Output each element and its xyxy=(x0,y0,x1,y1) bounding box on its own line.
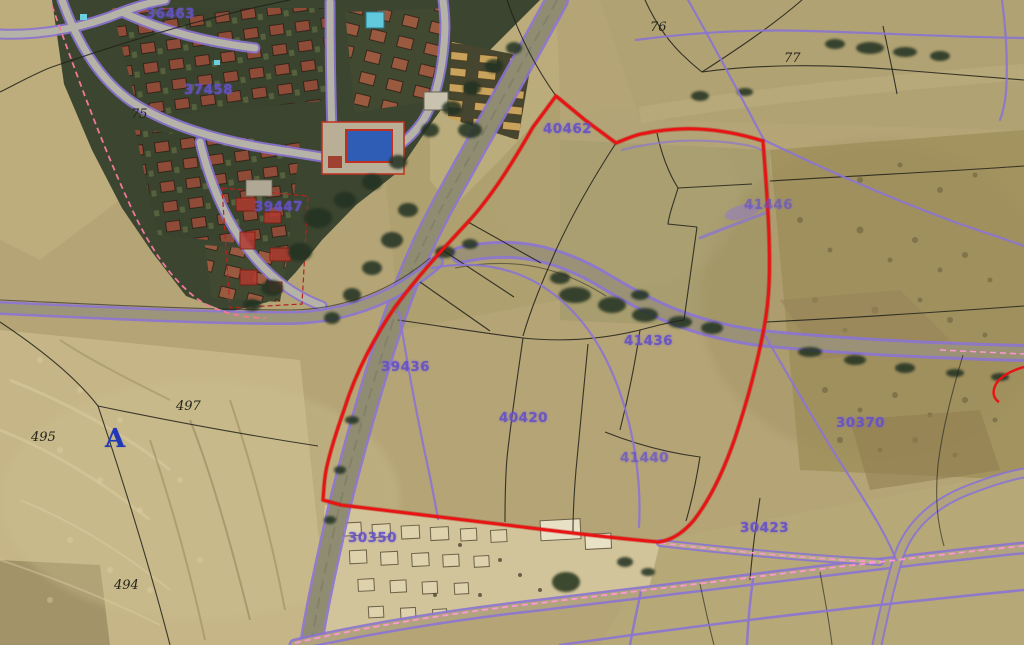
parcel-label-39436: 39436 xyxy=(381,359,430,375)
parcel-label-41440: 41440 xyxy=(620,450,669,466)
ref-label-494: 494 xyxy=(114,578,139,593)
parcel-label-41446: 41446 xyxy=(744,197,793,213)
parcel-label-41436: 41436 xyxy=(624,333,673,349)
marker-a: A xyxy=(105,424,125,454)
parcel-label-30370: 30370 xyxy=(836,415,885,431)
parcel-label-30423: 30423 xyxy=(740,520,789,536)
swimming-pool xyxy=(366,12,384,28)
parcel-label-40462: 40462 xyxy=(543,121,592,137)
parcel-label-39447: 39447 xyxy=(254,199,303,215)
pond xyxy=(552,572,580,592)
parcel-label-30350: 30350 xyxy=(348,530,397,546)
ref-label-495: 495 xyxy=(31,430,56,445)
parcel-label-36463: 36463 xyxy=(146,6,195,22)
sports-court xyxy=(346,130,392,162)
map-viewport[interactable]: 36463 37458 39447 40462 41446 41436 3943… xyxy=(0,0,1024,645)
ref-label-497: 497 xyxy=(176,399,201,414)
ref-label-75: 75 xyxy=(131,107,148,122)
ref-label-76: 76 xyxy=(650,20,667,35)
parcel-label-40420: 40420 xyxy=(499,410,548,426)
parcel-label-37458: 37458 xyxy=(184,82,233,98)
ref-label-77: 77 xyxy=(784,51,801,66)
satellite-map xyxy=(0,0,1024,645)
